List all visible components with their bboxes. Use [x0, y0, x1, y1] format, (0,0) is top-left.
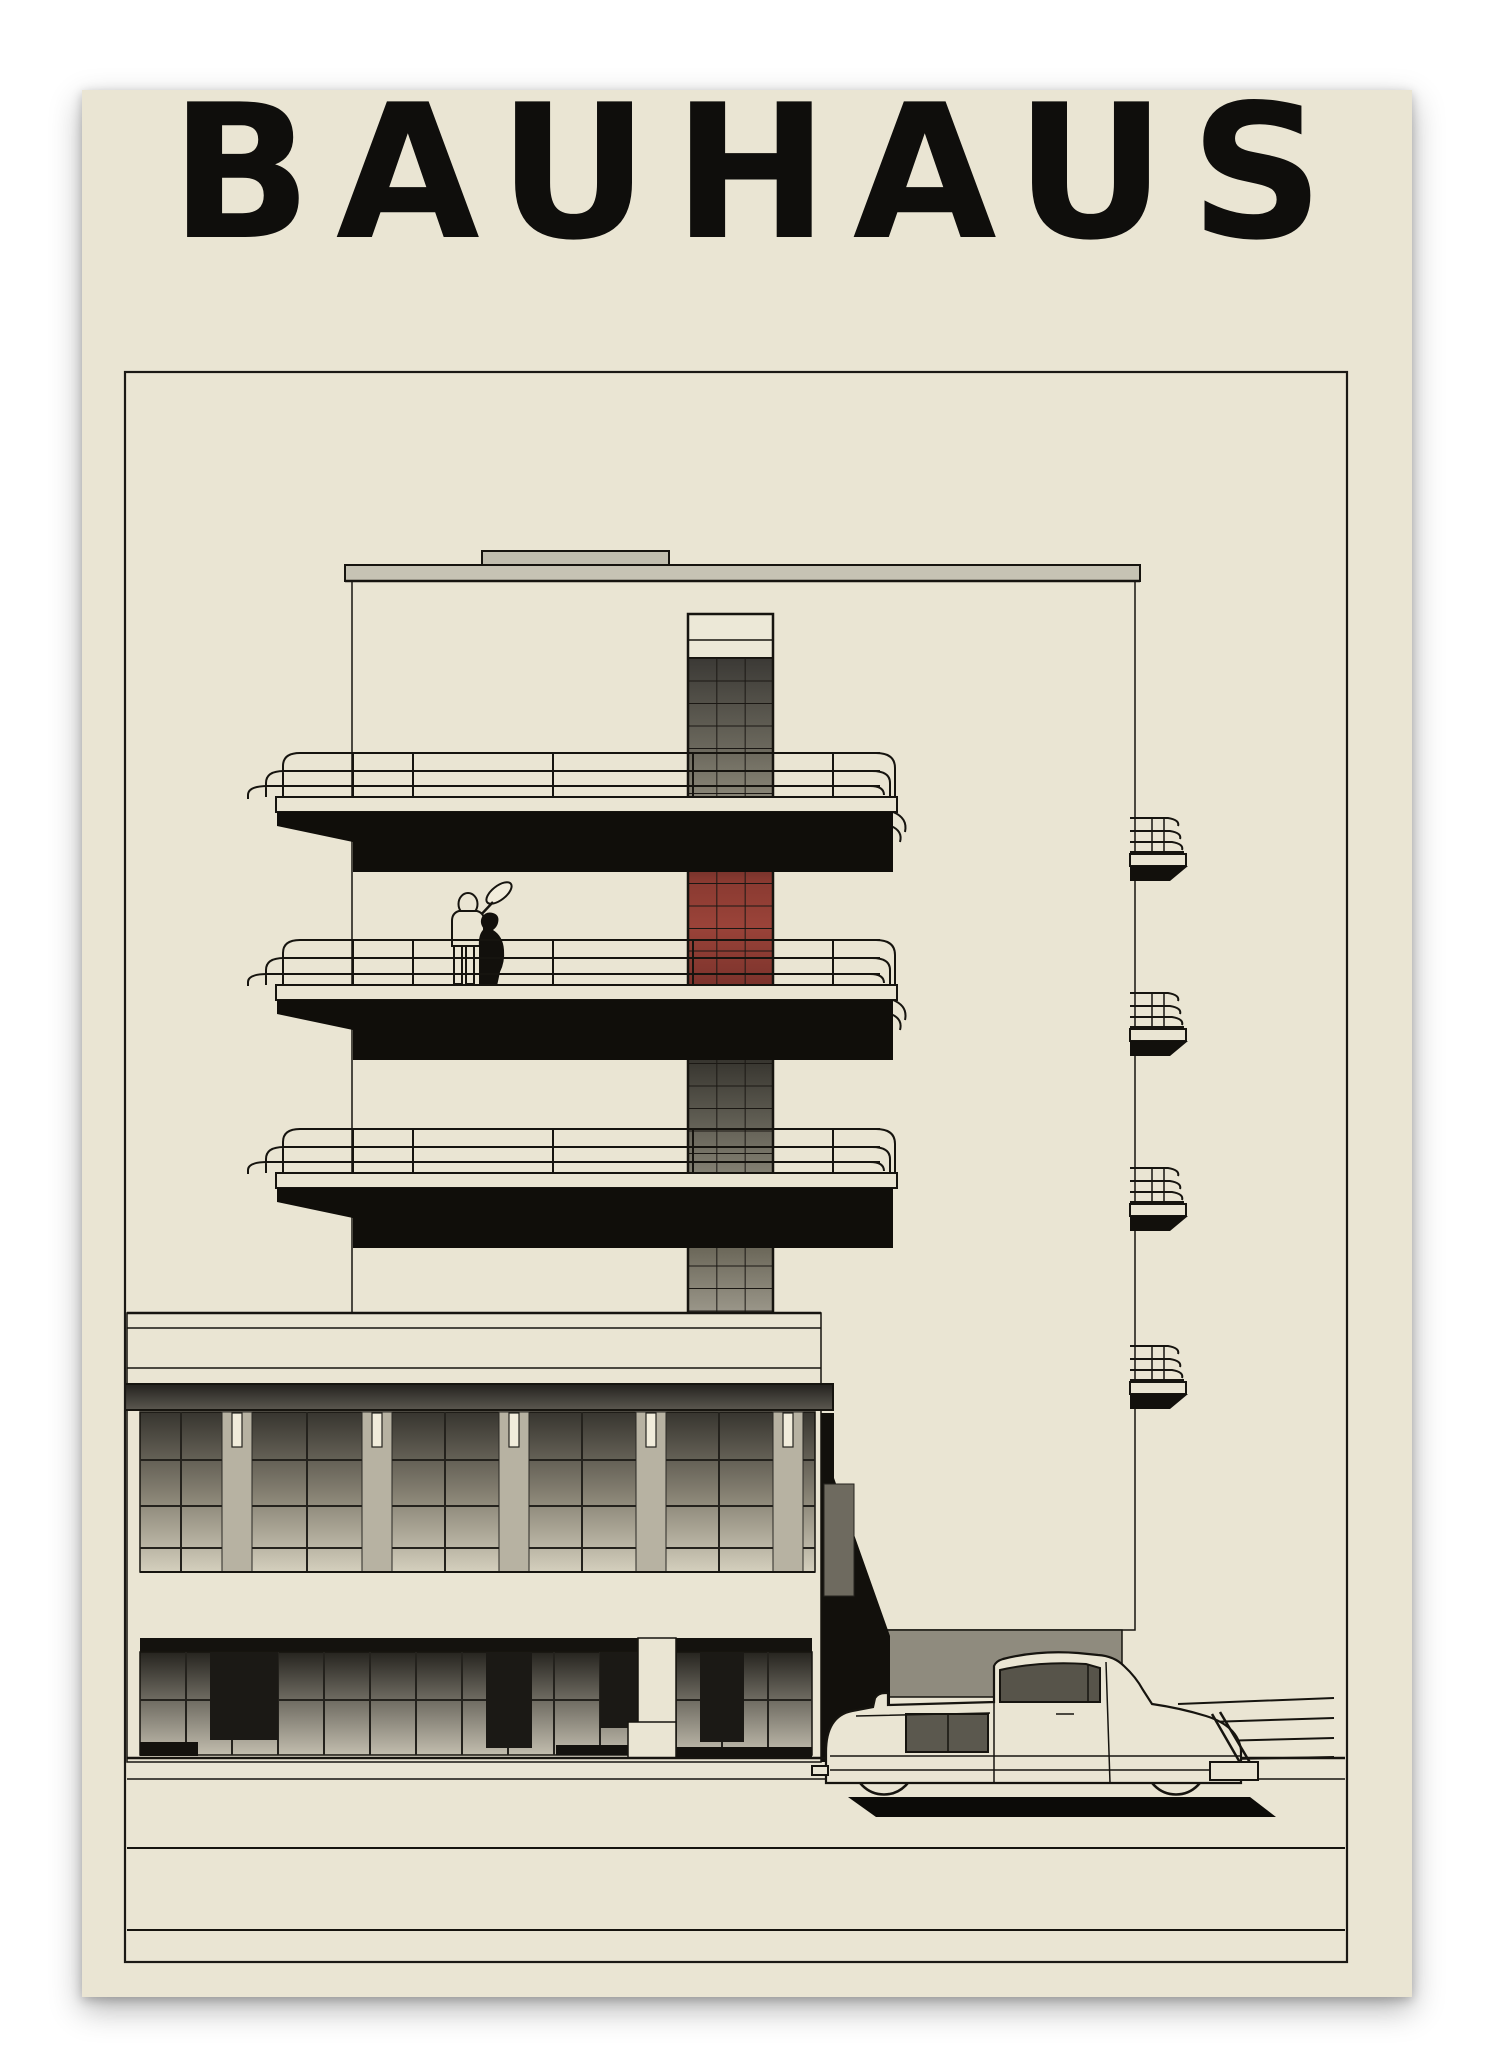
side-balcony [1130, 993, 1188, 1056]
poster-title: BAUHAUS [170, 90, 1348, 281]
lower-building [125, 1313, 833, 1762]
side-balconies [1130, 818, 1188, 1409]
recess-door [824, 1484, 854, 1596]
balcony-lower [248, 1129, 897, 1248]
roof-block [482, 551, 669, 566]
balcony-top [248, 753, 906, 872]
car-cabin-window [1000, 1663, 1100, 1702]
front-bumper [812, 1766, 828, 1775]
light-figure-leg [466, 946, 474, 984]
rear-box [1210, 1762, 1258, 1780]
bauhaus-poster: BAUHAUS [82, 90, 1412, 1997]
balcony-shadow-band [277, 1000, 893, 1060]
poster-artwork: BAUHAUS [82, 90, 1412, 1997]
cornice [125, 1384, 833, 1410]
balcony-slab [276, 797, 897, 812]
car-shadow [848, 1797, 1276, 1817]
balcony-rail-left-curl [248, 753, 330, 799]
balcony-rail-left-curl [248, 940, 330, 986]
side-balcony [1130, 1346, 1188, 1409]
balcony-rail-left-curl [248, 1129, 330, 1174]
storefront-fascia [140, 1638, 812, 1652]
light-figure-leg [454, 946, 462, 984]
car-side-panel [906, 1714, 988, 1752]
side-balcony [1130, 818, 1188, 881]
balcony-shadow-band [277, 1188, 893, 1248]
balcony-shadow-band [277, 812, 893, 872]
page-background: BAUHAUS [0, 0, 1490, 2048]
side-balcony [1130, 1168, 1188, 1231]
storefront [140, 1638, 812, 1758]
roof-parapet [345, 565, 1140, 581]
balcony-slab [276, 1173, 897, 1188]
balcony-slab [276, 985, 897, 1000]
storefront-pillar-base [628, 1722, 676, 1758]
tower-cap [688, 614, 773, 658]
